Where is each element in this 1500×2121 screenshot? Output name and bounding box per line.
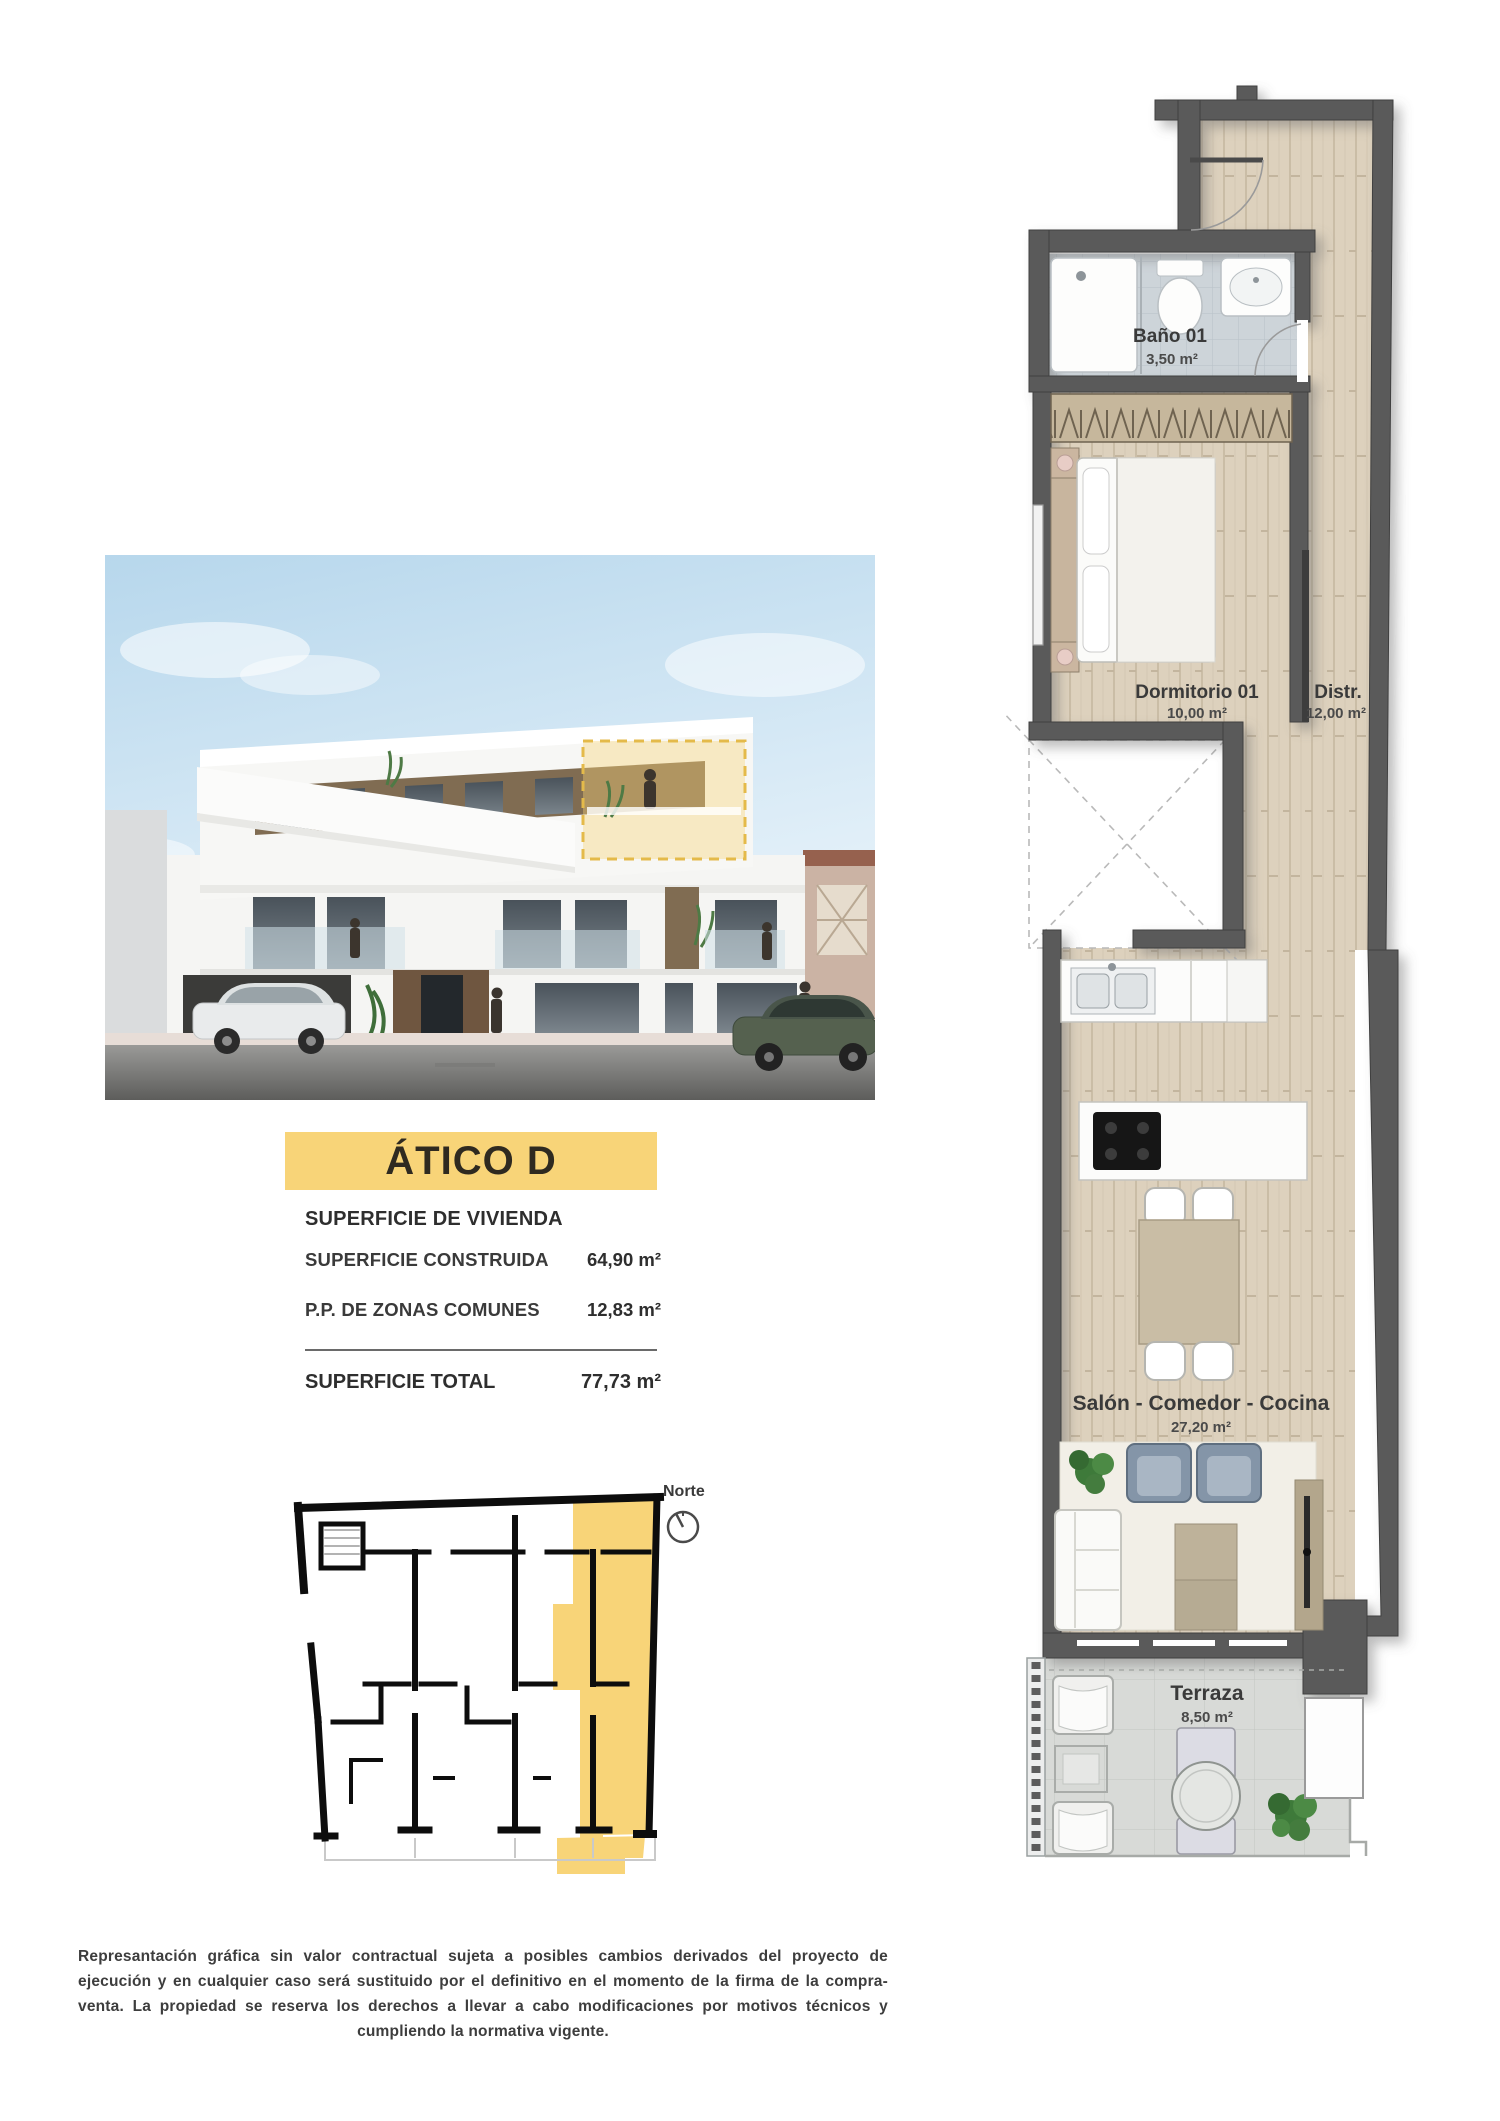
table-total-row: SUPERFICIE TOTAL 77,73 m² [305,1371,661,1394]
tv-sideboard [1295,1480,1323,1630]
surface-table-header: SUPERFICIE DE VIVIENDA [305,1208,661,1231]
terrace-table-set [1172,1728,1240,1854]
armchair-cushion [1137,1456,1181,1496]
distributor: Distr. 12,00 m² [1306,682,1366,722]
toilet [1157,260,1203,334]
kitchen-island [1079,1102,1307,1180]
wall-entry-left [1178,100,1200,248]
room-label-living: Salón - Comedor - Cocina [1073,1392,1330,1415]
atico-highlight-box [583,741,745,859]
brochure-page: ÁTICO D SUPERFICIE DE VIVIENDA SUPERFICI… [0,0,1500,2121]
total-value: 77,73 m² [581,1371,661,1394]
room-label-bath: Baño 01 [1133,326,1207,347]
row-value: 64,90 m² [587,1249,661,1271]
bath-door-opening [1297,320,1308,382]
room-area-bath: 3,50 m² [1146,351,1198,368]
wall-bath-bottom [1029,376,1310,392]
wall-bedroom-bottom [1029,722,1243,740]
bedroom-sliding-door [1302,550,1309,722]
neighbour-left [105,810,167,1040]
coffee-table [1175,1580,1237,1630]
wall-corridor-left [1223,722,1243,948]
room-label-bedroom: Dormitorio 01 [1135,682,1259,703]
wardrobe [1051,394,1292,442]
wall-right-lower [1350,950,1398,1636]
room-area-terrace: 8,50 m² [1181,1709,1233,1726]
shower-drain [1076,271,1086,281]
surface-table: SUPERFICIE DE VIVIENDA SUPERFICIE CONSTR… [305,1200,661,1394]
north-label: Norte [663,1483,735,1501]
room-area-living: 27,20 m² [1171,1419,1231,1436]
ac-unit-platform [1305,1698,1363,1798]
shower-tray [1051,258,1137,372]
bed [1051,448,1215,672]
fridge [1227,960,1267,1022]
room-label-terrace: Terraza [1170,1682,1243,1705]
key-plan-drawing [205,1478,695,1918]
unit-title: ÁTICO D [385,1139,556,1184]
living-area [1055,1442,1323,1630]
wall-bath-right [1295,252,1310,322]
sink [1221,258,1291,316]
wall-bath-left [1029,230,1049,380]
bedroom-window [1033,505,1043,645]
building-render-illustration [105,555,875,1100]
row-value: 12,83 m² [587,1299,661,1321]
sofa [1055,1510,1121,1630]
dining-chair [1193,1342,1233,1380]
unit-title-banner: ÁTICO D [285,1132,657,1190]
distributor-floor-lower [1243,722,1375,950]
room-area-bedroom: 10,00 m² [1167,705,1227,722]
road-mark [435,1063,495,1067]
total-label: SUPERFICIE TOTAL [305,1371,495,1394]
room-label-distr: Distr. [1314,682,1362,703]
entry-hall-floor [1200,118,1375,232]
table-row: SUPERFICIE CONSTRUIDA 64,90 m² [305,1249,661,1271]
floor-plan-drawing: Baño 01 3,50 m² Dormitori [1005,80,1475,1895]
armchair-cushion [1207,1456,1251,1496]
table-row: P.P. DE ZONAS COMUNES 12,83 m² [305,1299,661,1321]
key-plan [205,1478,695,1918]
table-divider [305,1349,657,1351]
wall-bath-top [1029,230,1315,252]
building-render [105,555,875,1100]
wall-right-upper [1368,100,1393,950]
legal-disclaimer: Represantación gráfica sin valor contrac… [78,1944,888,2044]
wall-kitchen-top [1133,930,1245,948]
kitchen-faucet [1108,963,1116,971]
room-area-distr: 12,00 m² [1306,705,1366,722]
dining-chair [1145,1342,1185,1380]
coffee-table [1175,1524,1237,1580]
terrace-glass-doors [1077,1640,1287,1646]
compass-icon [655,1501,715,1549]
row-label: SUPERFICIE CONSTRUIDA [305,1249,549,1271]
row-label: P.P. DE ZONAS COMUNES [305,1299,540,1321]
dining-table [1139,1220,1239,1344]
north-indicator: Norte [655,1483,735,1554]
distributor-floor-upper [1308,230,1375,722]
floor-plan: Baño 01 3,50 m² Dormitori [1005,80,1475,1895]
